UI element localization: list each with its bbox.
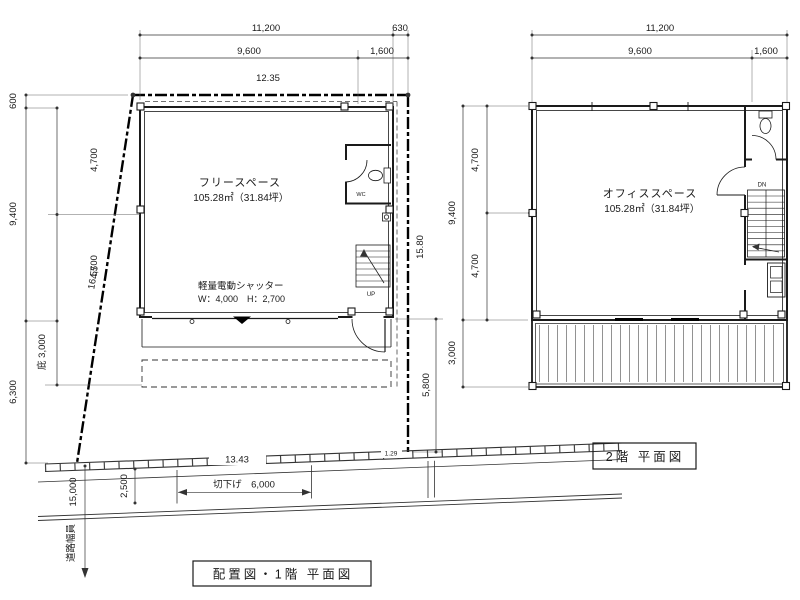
dimensions-right-side: 15.80 5,800 <box>395 235 443 453</box>
stair-dn-label: DN <box>758 183 767 189</box>
shutter-label: 軽量電動シャッター <box>198 281 284 292</box>
dim-2f-top-sub: 1,600 <box>754 46 778 57</box>
dim-2f-inner-4700-b: 4,700 <box>470 254 481 278</box>
dim-site-top: 12.35 <box>256 73 280 84</box>
dim-right-5800: 5,800 <box>421 373 432 397</box>
shutter-size-label: W：4,000 H：2,700 <box>198 294 285 304</box>
right-plan: DN <box>447 23 790 469</box>
left-plan-title: 配置図・1階 平面図 <box>193 561 371 586</box>
dim-left-9400: 9,400 <box>8 202 19 226</box>
dim-road-15000: 15,000 <box>68 477 79 506</box>
dimensions-top-left-plan: 11,200 630 9,600 1,600 12.35 <box>139 23 410 104</box>
dim-2f-top-main: 9,600 <box>628 46 652 57</box>
dim-2f-left-3000: 3,000 <box>447 341 458 365</box>
stair-up-label: UP <box>367 292 375 298</box>
dimensions-left-right-plan: 9,400 3,000 4,700 4,700 <box>447 105 528 389</box>
dimensions-left-side: 600 9,400 6,300 4,700 4,700 庇 3,000 16.5… <box>8 93 142 464</box>
drawing-svg: WC UP <box>0 0 800 600</box>
dim-top-offset: 630 <box>392 23 408 34</box>
dim-top-total: 11,200 <box>252 23 280 34</box>
dim-curb-cut: 切下げ 6,000 <box>213 480 275 491</box>
dim-2f-top-total: 11,200 <box>646 23 674 34</box>
dim-road-2500: 2,500 <box>119 474 130 498</box>
room-area-2f: 105.28㎡（31.84坪） <box>604 202 700 215</box>
wc-room: WC <box>345 145 391 221</box>
left-plan-title-text: 配置図・1階 平面図 <box>213 567 353 582</box>
right-plan-title-text: 2階 平面図 <box>606 449 684 464</box>
dim-left-6300: 6,300 <box>8 380 19 404</box>
dim-2f-inner-4700-a: 4,700 <box>470 148 481 172</box>
dimensions-top-right-plan: 11,200 9,600 1,600 <box>531 23 789 102</box>
dim-top-main: 9,600 <box>237 46 261 57</box>
dim-site-right: 15.80 <box>415 235 426 259</box>
shutter-opening <box>152 315 338 325</box>
room-name-2f: オフィススペース <box>603 187 697 200</box>
right-plan-title: 2階 平面図 <box>593 443 696 469</box>
dim-left-600: 600 <box>8 93 19 109</box>
dim-site-left: 16.55 <box>86 265 101 290</box>
entrance-door-1f <box>352 315 385 353</box>
dim-top-sub: 1,600 <box>370 46 394 57</box>
columns-2f <box>529 103 790 390</box>
room-name-1f: フリースペース <box>199 177 281 189</box>
dim-site-bottom: 13.43 <box>225 455 249 466</box>
dim-inner-4700-a: 4,700 <box>89 148 100 172</box>
interior-2f: DN <box>717 106 787 320</box>
stair-1f: UP <box>356 245 390 298</box>
floor-plan-drawing: WC UP <box>0 0 800 600</box>
dim-site-bottom-small: 1.29 <box>385 451 398 458</box>
road-width-label: 道路幅員 <box>65 524 77 563</box>
site-boundary-lines <box>77 93 410 463</box>
dim-2f-left-9400: 9,400 <box>447 201 458 225</box>
balcony <box>532 320 787 388</box>
wc-label: WC <box>356 192 365 198</box>
road-area: 13.43 1.29 15,000 道路幅員 2,500 切下げ 6,000 <box>38 443 622 578</box>
dim-eave-3000: 庇 3,000 <box>36 334 48 370</box>
room-area-1f: 105.28㎡（31.84坪） <box>193 191 289 204</box>
